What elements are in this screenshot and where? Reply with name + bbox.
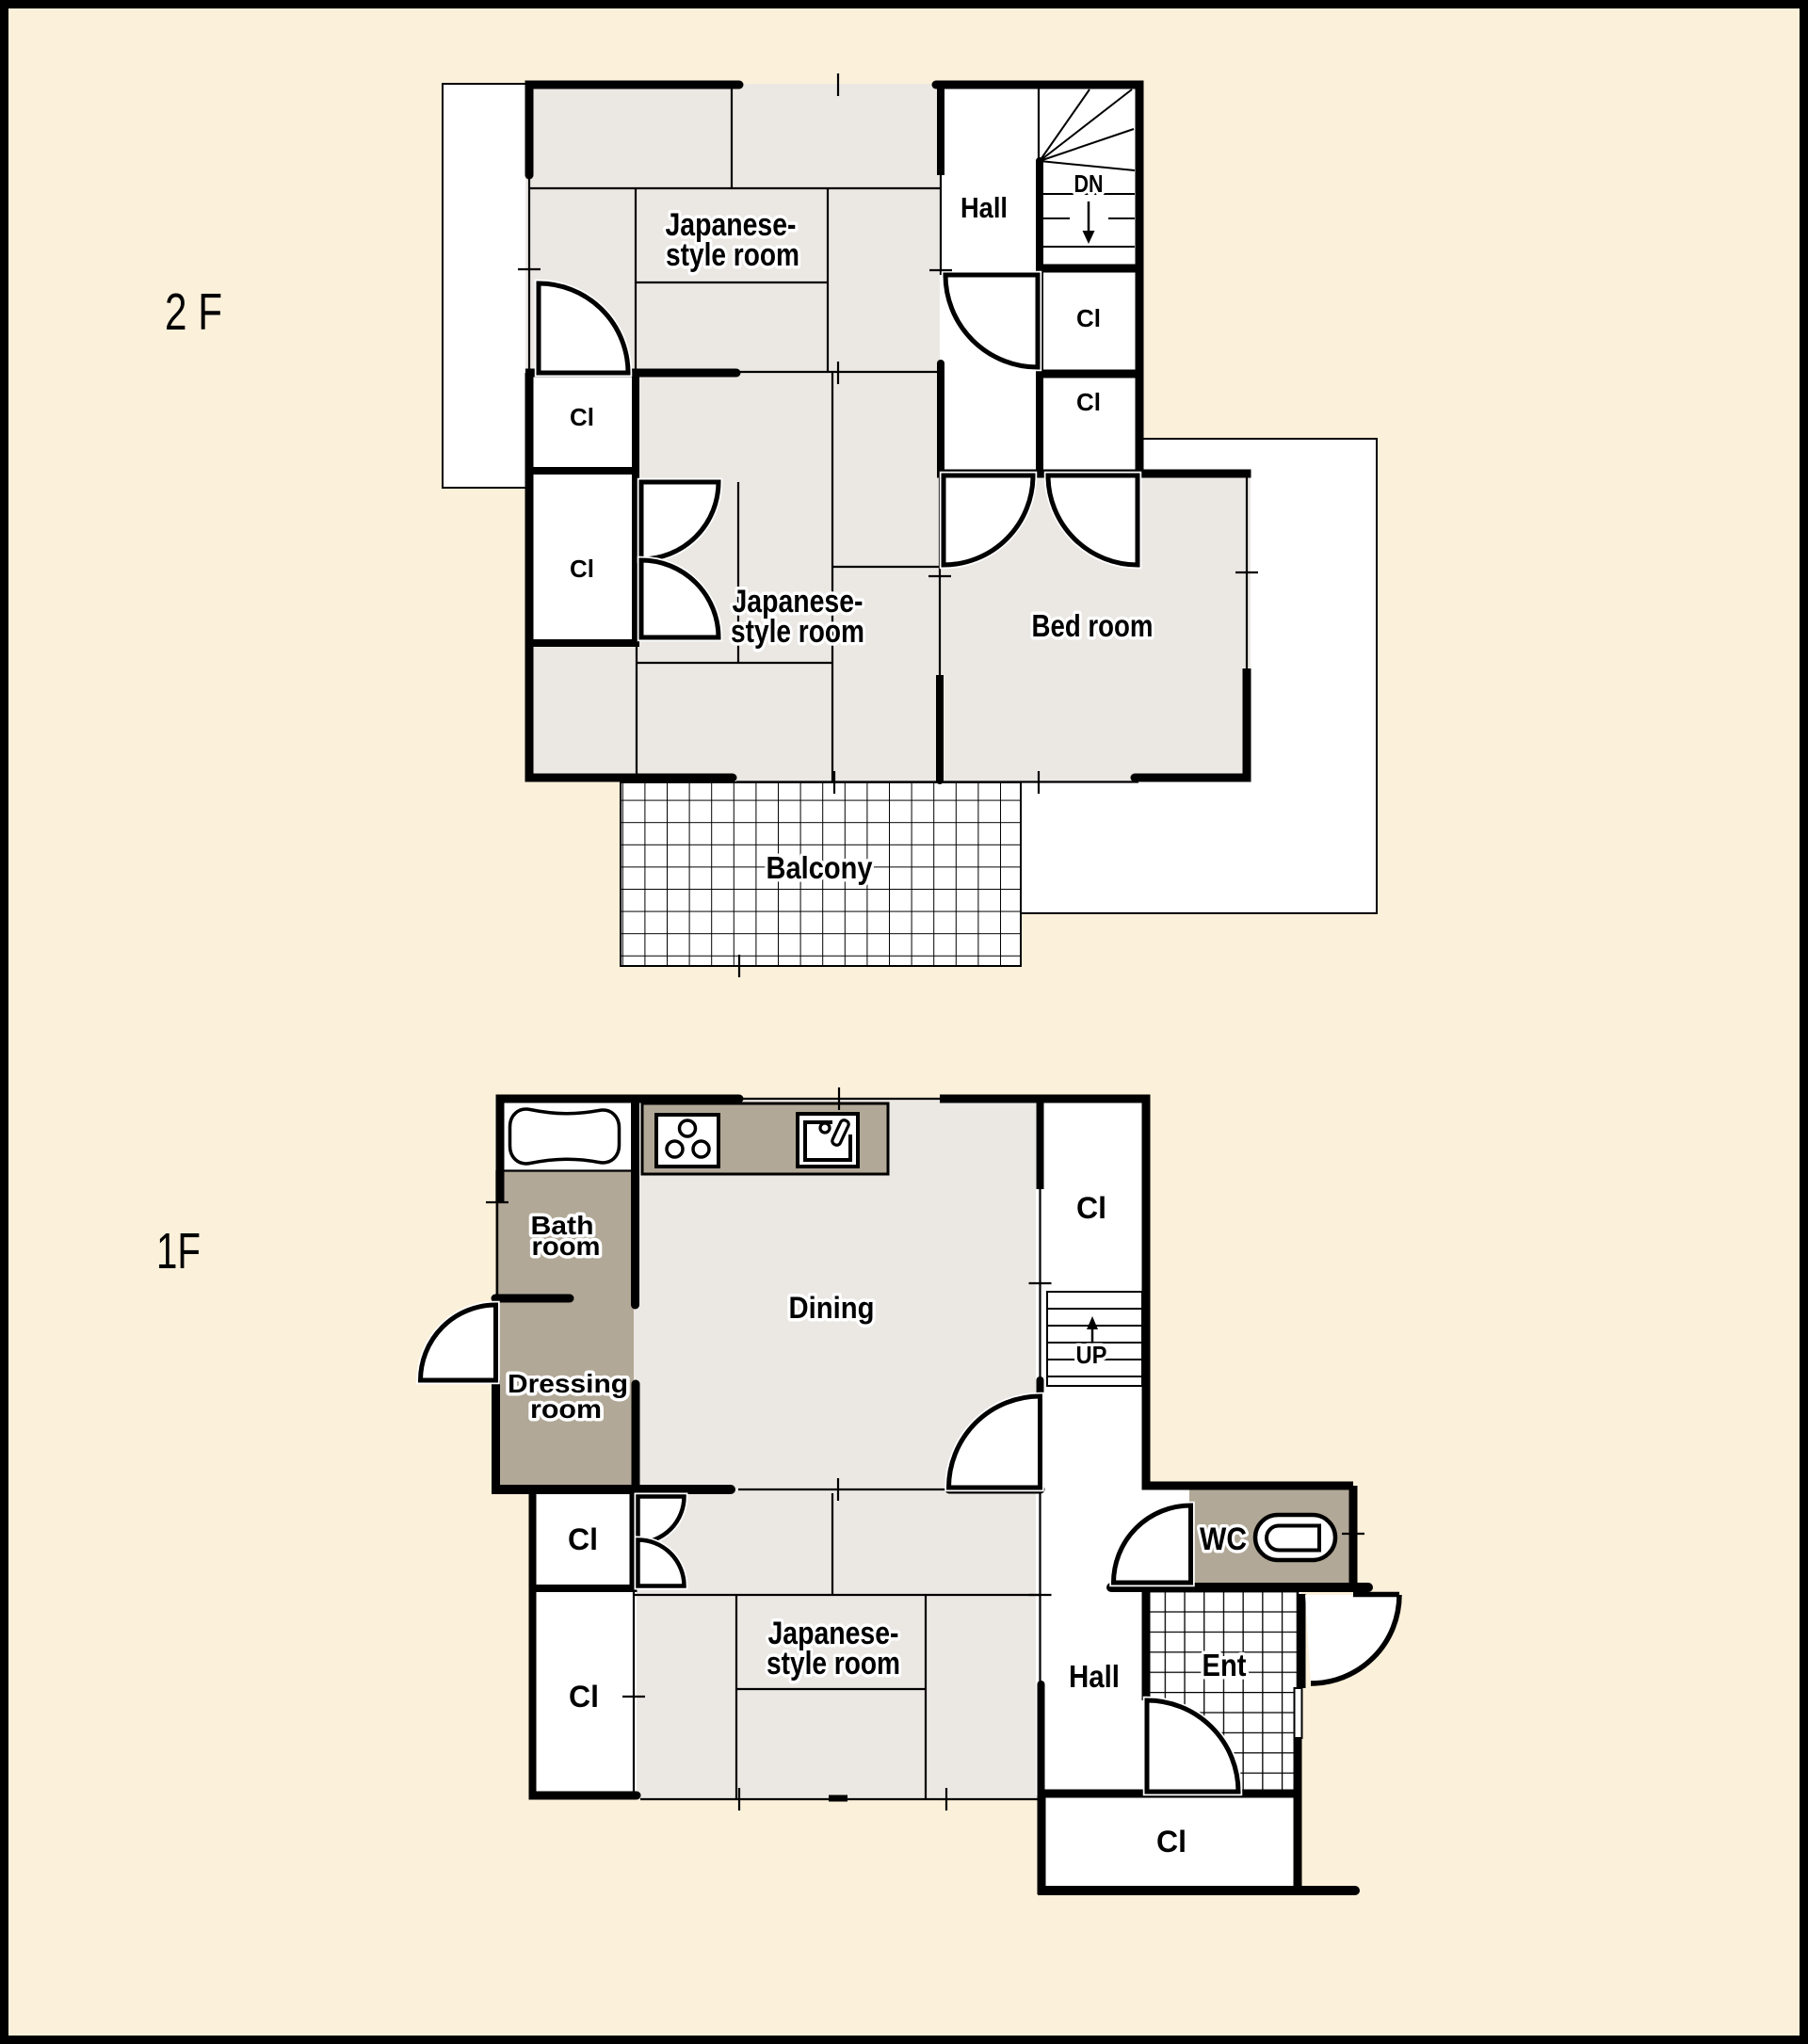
svg-text:Cl: Cl — [1076, 304, 1101, 332]
svg-text:room: room — [532, 1231, 601, 1261]
svg-text:style room: style room — [767, 1646, 900, 1682]
svg-text:style room: style room — [731, 614, 864, 650]
svg-text:Hall: Hall — [960, 191, 1008, 224]
svg-text:Cl: Cl — [570, 555, 594, 583]
svg-text:Hall: Hall — [1069, 1659, 1120, 1694]
svg-text:DN: DN — [1074, 169, 1104, 198]
svg-text:Balcony: Balcony — [767, 850, 874, 885]
svg-text:WC: WC — [1200, 1521, 1247, 1557]
svg-text:UP: UP — [1076, 1341, 1107, 1369]
svg-text:1F: 1F — [156, 1223, 201, 1280]
svg-text:Cl: Cl — [1076, 1191, 1106, 1225]
svg-text:2 F: 2 F — [165, 282, 222, 341]
svg-text:Cl: Cl — [1156, 1825, 1186, 1859]
svg-text:style room: style room — [666, 237, 799, 273]
svg-text:Cl: Cl — [569, 1680, 599, 1714]
svg-text:room: room — [530, 1394, 602, 1424]
svg-text:Dining: Dining — [789, 1291, 875, 1325]
svg-text:Cl: Cl — [568, 1522, 598, 1556]
svg-text:Cl: Cl — [570, 403, 594, 431]
svg-text:Cl: Cl — [1076, 388, 1101, 416]
svg-text:Bed room: Bed room — [1032, 608, 1154, 643]
svg-text:Ent: Ent — [1203, 1648, 1247, 1682]
